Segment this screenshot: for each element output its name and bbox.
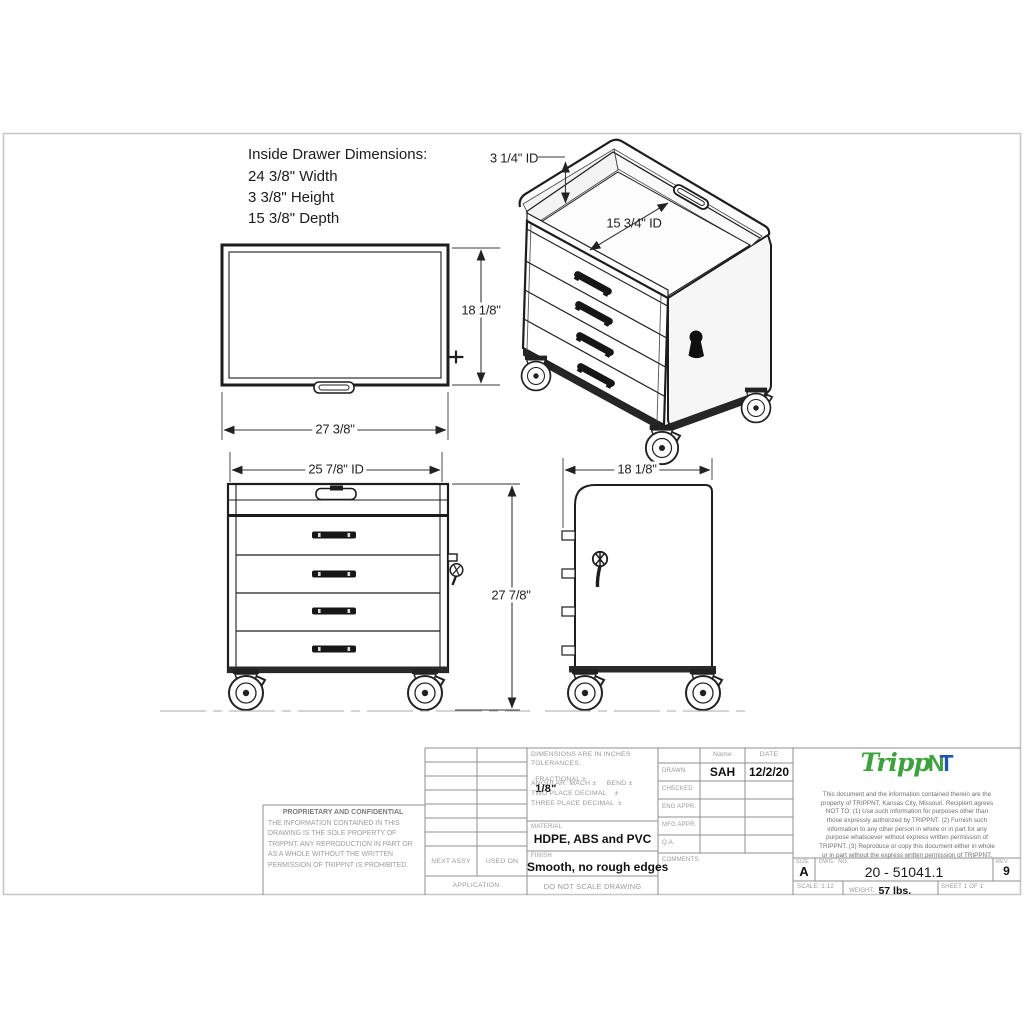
dwg-no-value: 20 - 51041.1	[815, 864, 993, 880]
drawn-date: 12/2/20	[745, 765, 793, 779]
legal-text: This document and the information contai…	[818, 791, 996, 861]
tolerance-line1: DIMENSIONS ARE IN INCHES	[531, 751, 631, 758]
scale-label: SCALE: 1:12	[797, 884, 834, 890]
logo-tripp: Tripp	[860, 748, 929, 777]
signoff-row-drawn: DRAWN	[662, 768, 685, 774]
front-lock-key	[448, 554, 463, 585]
inside-dims-title: Inside Drawer Dimensions:	[248, 146, 427, 163]
date-header: DATE	[745, 751, 793, 758]
size-value: A	[793, 864, 815, 879]
drawn-name: SAH	[700, 765, 745, 779]
tolerance-line4: ANGULAR: MACH ± BEND ±	[531, 780, 632, 787]
tolerance-line2: TOLERANCES:	[531, 760, 581, 767]
inside-dims-depth: 15 3/8" Depth	[248, 210, 339, 227]
weight-label: WEIGHT:	[849, 888, 874, 894]
finish-label: FINISH	[531, 853, 552, 859]
trippnt-logo: TrippNT	[793, 748, 1021, 777]
application-label: APPLICATION	[425, 882, 527, 889]
finish-value: Smooth, no rough edges	[527, 860, 658, 874]
inside-dims-height: 3 3/8" Height	[248, 189, 334, 206]
tolerance-line6: THREE PLACE DECIMAL ±	[531, 800, 622, 807]
weight-field: WEIGHT: 57 lbs.	[849, 881, 911, 899]
next-assy-label: NEXT ASSY	[425, 858, 477, 865]
weight-value: 57 lbs.	[878, 885, 911, 897]
signoff-row-mfg-appr: MFG APPR.	[662, 822, 696, 828]
top-view-key	[448, 352, 463, 363]
inside-dims-width: 24 3/8" Width	[248, 168, 338, 185]
front-view	[228, 484, 463, 710]
isometric-view	[520, 140, 773, 464]
do-not-scale-label: DO NOT SCALE DRAWING	[527, 882, 658, 891]
name-header: Name	[700, 751, 745, 758]
logo-t: T	[939, 750, 953, 776]
used-on-label: USED ON	[477, 858, 527, 865]
dim-front-inner-width: 25 7/8" ID	[305, 462, 366, 477]
material-value: HDPE, ABS and PVC	[527, 832, 658, 846]
tolerance-line5: TWO PLACE DECIMAL ±	[531, 790, 619, 797]
comments-label: COMMENTS:	[662, 857, 700, 863]
dim-front-height: 27 7/8"	[488, 588, 533, 603]
signoff-row-checked: CHECKED	[662, 786, 693, 792]
proprietary-title: PROPRIETARY AND CONFIDENTIAL	[267, 809, 419, 816]
drawing-sheet: Inside Drawer Dimensions: 24 3/8" Width …	[0, 0, 1024, 1024]
sheet-label: SHEET 1 OF 1	[941, 884, 983, 890]
dim-iso-tray-width: 15 3/4" ID	[603, 216, 664, 231]
rev-value: 9	[993, 864, 1020, 878]
dim-top-width: 27 3/8"	[312, 422, 357, 437]
signoff-row-eng-appr: ENG APPR.	[662, 804, 696, 810]
dim-top-height: 18 1/8"	[458, 303, 503, 318]
top-view	[222, 245, 463, 393]
material-label: MATERIAL	[531, 824, 562, 830]
dim-iso-tray-depth: 3 1/4" ID	[487, 151, 541, 166]
dim-side-width: 18 1/8"	[614, 462, 659, 477]
signoff-row-qa: Q.A.	[662, 840, 675, 846]
side-view	[562, 485, 722, 710]
proprietary-body: THE INFORMATION CONTAINED IN THIS DRAWIN…	[268, 819, 418, 871]
